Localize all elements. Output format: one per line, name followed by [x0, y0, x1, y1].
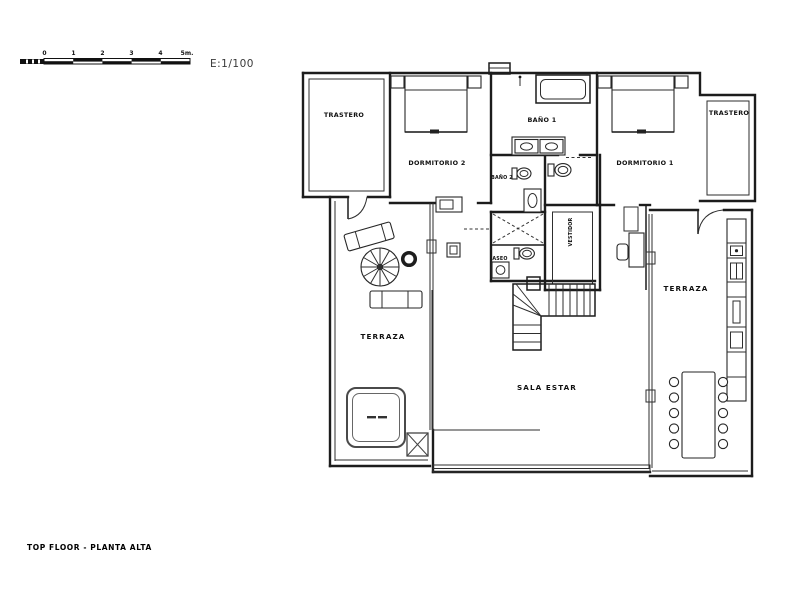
room-label-trastero-right: TRASTERO [709, 109, 750, 117]
window-mullion [646, 390, 655, 402]
bed-symbol-dormitorio-2 [391, 76, 481, 134]
scale-tick-1: 1 [71, 50, 75, 57]
room-label-vestidor: VESTIDOR [568, 217, 574, 246]
room-label-terraza-left: TERRAZA [361, 332, 406, 341]
scale-tick-0: 0 [42, 50, 46, 57]
spiral-staircase-symbol [361, 248, 399, 286]
toilet-symbol-wc [548, 164, 571, 177]
toilet-symbol-bano-2 [512, 168, 531, 179]
room-label-terraza-right: TERRAZA [664, 284, 709, 293]
room-label-aseo: ASEO [492, 256, 507, 262]
scale-tick-2: 2 [100, 50, 104, 57]
side-table-symbol [403, 253, 416, 266]
lounge-chair-symbol [370, 291, 422, 308]
scale-tick-3: 3 [129, 50, 133, 57]
scale-tick-end: 5m. [181, 50, 194, 57]
nightstand-symbol [468, 76, 481, 88]
room-label-dormitorio-2: DORMITORIO 2 [408, 159, 465, 167]
window-mullion [427, 240, 436, 253]
drawing-caption: TOP FLOOR - PLANTA ALTA [27, 543, 152, 552]
sink-symbol-aseo [492, 262, 509, 278]
nightstand-symbol [391, 76, 404, 88]
desk-symbol [617, 207, 644, 267]
room-label-bano-1: BAÑO 1 [527, 115, 556, 124]
door-swing-terraza-left [348, 197, 367, 219]
jacuzzi-symbol [347, 388, 405, 447]
nightstand-symbol [675, 76, 688, 88]
scale-tick-4: 4 [158, 50, 162, 57]
shower-symbol [493, 214, 543, 243]
lounge-chair-symbol [344, 222, 395, 252]
trastero-left-inner-wall [309, 79, 384, 191]
room-label-sala-estar: SALA ESTAR [517, 383, 577, 392]
chair-symbol [617, 244, 628, 260]
outdoor-counter-symbol [727, 219, 746, 401]
scale-bar: 0 1 2 3 4 5m. E:1/100 [20, 50, 254, 70]
staircase-symbol [513, 277, 595, 350]
bathtub-symbol [536, 75, 590, 103]
window-mullion [646, 252, 655, 264]
dining-table-symbol [669, 372, 727, 458]
door-swing-terraza-right [698, 210, 723, 234]
level-mark [519, 76, 522, 86]
room-label-dormitorio-1: DORMITORIO 1 [616, 159, 673, 167]
floor-plan-drawing: 0 1 2 3 4 5m. E:1/100 [0, 0, 800, 600]
scale-ratio-label: E:1/100 [210, 58, 254, 70]
double-sink-symbol [512, 137, 565, 155]
room-label-bano-2: BAÑO 2 [491, 174, 513, 181]
floor-plan-page: 0 1 2 3 4 5m. E:1/100 [0, 0, 800, 600]
bed-symbol-dormitorio-1 [598, 76, 688, 134]
cabinet-symbol [436, 197, 462, 257]
planter-grate-symbol [407, 433, 428, 456]
toilet-symbol-aseo [514, 248, 534, 259]
room-label-trastero-left: TRASTERO [324, 111, 365, 119]
sink-symbol-bano-2 [524, 189, 541, 212]
nightstand-symbol [598, 76, 611, 88]
